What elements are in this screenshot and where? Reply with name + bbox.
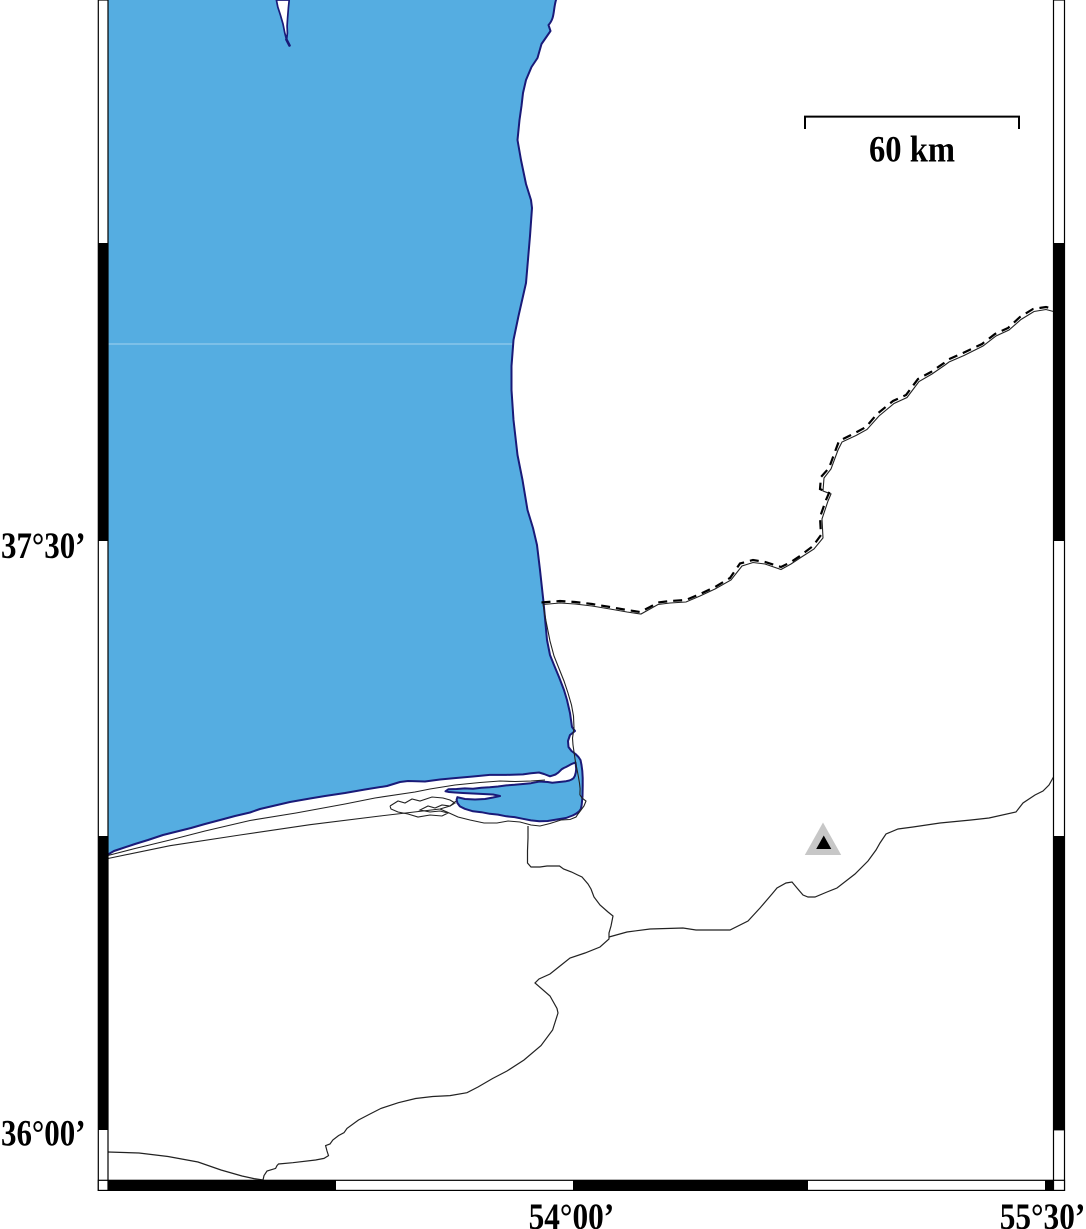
svg-text:36°00’: 36°00’ — [1, 1114, 86, 1155]
svg-text:55°30’: 55°30’ — [1000, 1197, 1086, 1229]
svg-text:54°00’: 54°00’ — [529, 1197, 615, 1229]
svg-text:60 km: 60 km — [869, 130, 955, 171]
svg-text:37°30’: 37°30’ — [1, 526, 86, 567]
